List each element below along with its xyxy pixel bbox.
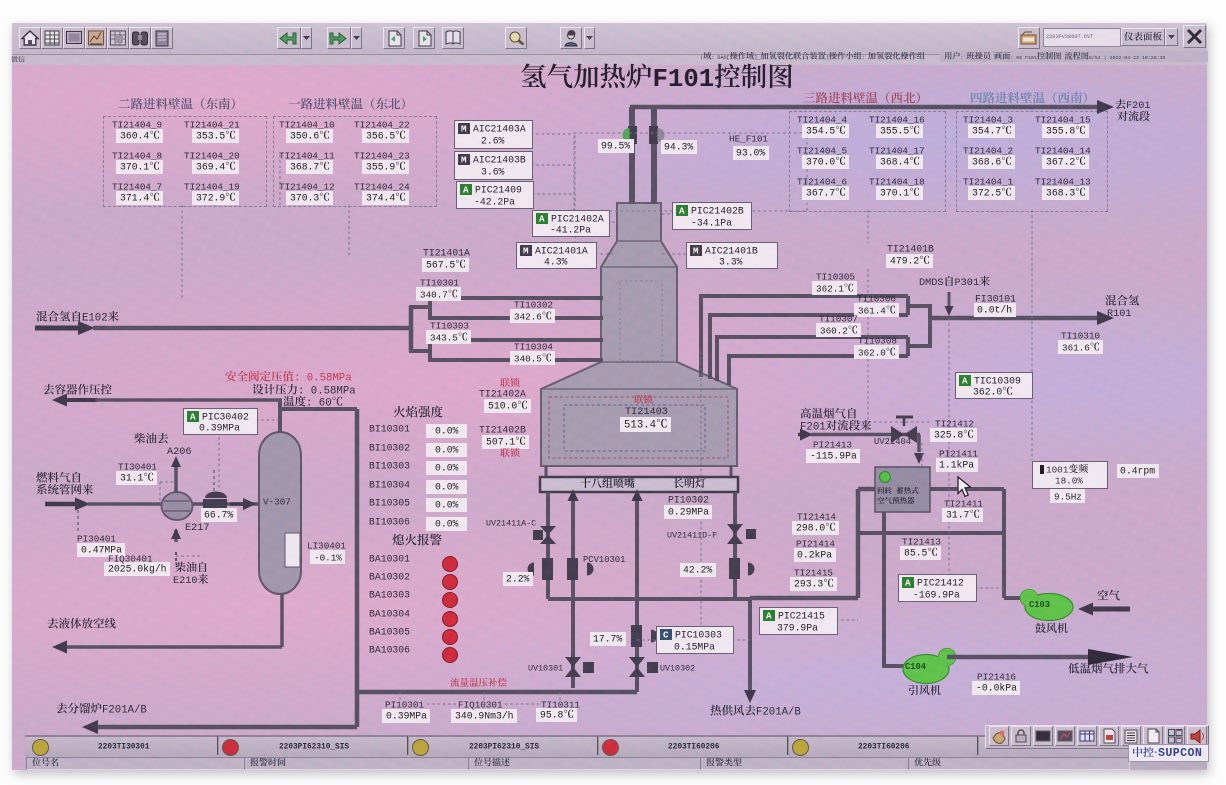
svg-text:372.9: 372.9 bbox=[196, 193, 225, 204]
svg-text:TI21404_17: TI21404_17 bbox=[869, 145, 925, 156]
svg-text:342.6: 342.6 bbox=[514, 311, 542, 322]
svg-text:F201A/B: F201A/B bbox=[756, 707, 801, 719]
svg-text:F101: F101 bbox=[652, 65, 714, 94]
svg-text:TI10301: TI10301 bbox=[420, 277, 459, 288]
svg-text:340.7: 340.7 bbox=[420, 289, 448, 300]
svg-text:355.9: 355.9 bbox=[366, 162, 395, 173]
svg-text:M: M bbox=[461, 123, 467, 134]
svg-text:FIQ10301: FIQ10301 bbox=[458, 699, 503, 710]
svg-text:369.4: 369.4 bbox=[196, 162, 225, 173]
svg-text:513.4: 513.4 bbox=[624, 420, 656, 432]
svg-text:M: M bbox=[693, 245, 699, 256]
svg-text:FI30101: FI30101 bbox=[975, 294, 1016, 305]
svg-text:M: M bbox=[523, 245, 529, 256]
svg-text:TI10307: TI10307 bbox=[819, 313, 858, 324]
svg-text:510.0: 510.0 bbox=[488, 401, 517, 412]
svg-text:R101: R101 bbox=[1107, 308, 1132, 320]
svg-text:368.4: 368.4 bbox=[880, 157, 909, 168]
svg-text:TI21404_18: TI21404_18 bbox=[869, 176, 925, 187]
svg-text:V-307: V-307 bbox=[263, 496, 291, 507]
svg-text:TI10310: TI10310 bbox=[1061, 330, 1100, 341]
svg-text:BA10303: BA10303 bbox=[369, 590, 410, 601]
svg-text:TI30401: TI30401 bbox=[118, 461, 157, 472]
svg-text:362.0: 362.0 bbox=[973, 387, 1002, 398]
svg-text:-0.0kPa: -0.0kPa bbox=[976, 683, 1017, 694]
svg-text:SUPCON: SUPCON bbox=[1158, 747, 1202, 760]
svg-text:0.2kPa: 0.2kPa bbox=[797, 550, 832, 561]
svg-text:93.0%: 93.0% bbox=[736, 148, 765, 159]
svg-text:BI10303: BI10303 bbox=[369, 461, 410, 472]
svg-text:0.0%: 0.0% bbox=[435, 463, 459, 474]
svg-text:340.9Nm3/h: 340.9Nm3/h bbox=[455, 711, 514, 722]
svg-text:TI21404_19: TI21404_19 bbox=[184, 181, 240, 192]
svg-text:2.6%: 2.6% bbox=[481, 136, 505, 147]
svg-text:370.0: 370.0 bbox=[806, 157, 835, 168]
svg-text:354.7: 354.7 bbox=[972, 126, 1001, 137]
svg-text:A: A bbox=[905, 577, 911, 588]
svg-text:1.1kPa: 1.1kPa bbox=[939, 460, 974, 471]
svg-text:PCV10301: PCV10301 bbox=[583, 555, 625, 565]
svg-text:TI21404_9: TI21404_9 bbox=[112, 119, 162, 130]
svg-text:TI21404_12: TI21404_12 bbox=[279, 181, 335, 192]
svg-text:343.5: 343.5 bbox=[430, 332, 458, 343]
svg-text:TI21413: TI21413 bbox=[902, 536, 941, 547]
svg-text:TI21402B: TI21402B bbox=[479, 425, 526, 436]
svg-text:TI10303: TI10303 bbox=[430, 320, 469, 331]
svg-text:360.4: 360.4 bbox=[120, 131, 149, 142]
svg-text:BA10304: BA10304 bbox=[369, 609, 410, 620]
svg-text:PIC21409: PIC21409 bbox=[475, 184, 522, 195]
svg-text:-41.2Pa: -41.2Pa bbox=[550, 225, 591, 236]
svg-text:1001: 1001 bbox=[1046, 464, 1069, 475]
svg-text:TI21404_11: TI21404_11 bbox=[279, 150, 335, 161]
svg-text:360.2: 360.2 bbox=[820, 325, 848, 336]
svg-text:350.6: 350.6 bbox=[290, 131, 319, 142]
svg-text:AIC21403B: AIC21403B bbox=[473, 154, 526, 165]
svg-text:PI21414: PI21414 bbox=[796, 538, 835, 549]
svg-text:PI30401: PI30401 bbox=[77, 533, 116, 544]
svg-text:3.3%: 3.3% bbox=[719, 257, 743, 268]
svg-text:0.0%: 0.0% bbox=[435, 500, 459, 511]
svg-text:354.5: 354.5 bbox=[806, 126, 835, 137]
svg-text:367.2: 367.2 bbox=[1046, 157, 1075, 168]
svg-text:PIC21415: PIC21415 bbox=[778, 610, 825, 621]
svg-text:-42.2Pa: -42.2Pa bbox=[474, 196, 515, 207]
svg-text:]_: ]_ bbox=[754, 55, 761, 61]
svg-text:BA10305: BA10305 bbox=[369, 627, 410, 638]
svg-text:TI21404_3: TI21404_3 bbox=[963, 114, 1013, 125]
svg-text:3.6%: 3.6% bbox=[481, 167, 505, 178]
svg-text:298.0: 298.0 bbox=[796, 523, 825, 534]
svg-text:361.6: 361.6 bbox=[1062, 342, 1090, 353]
svg-text:C: C bbox=[663, 629, 669, 640]
svg-text:BI10301: BI10301 bbox=[369, 424, 410, 435]
svg-text:A: A bbox=[962, 375, 968, 386]
svg-text:95.8: 95.8 bbox=[540, 710, 564, 721]
svg-text:-34.1Pa: -34.1Pa bbox=[691, 217, 732, 228]
svg-text:BI10302: BI10302 bbox=[369, 443, 410, 454]
svg-text::: : bbox=[862, 55, 865, 61]
svg-text:PI21413: PI21413 bbox=[813, 439, 852, 450]
svg-text:: 0.58MPa: : 0.58MPa bbox=[294, 373, 352, 385]
svg-text:0.39MPa: 0.39MPa bbox=[199, 423, 240, 434]
svg-text:PI21411: PI21411 bbox=[939, 448, 978, 459]
svg-text:0.0%: 0.0% bbox=[435, 445, 459, 456]
svg-text:TI21412: TI21412 bbox=[935, 418, 974, 429]
svg-text:94.3%: 94.3% bbox=[664, 142, 693, 153]
svg-text:DMDS: DMDS bbox=[919, 277, 944, 289]
svg-text:2.2%: 2.2% bbox=[506, 574, 530, 585]
svg-text:0.29MPa: 0.29MPa bbox=[668, 507, 709, 518]
svg-text:355.8: 355.8 bbox=[1046, 126, 1075, 137]
svg-text:371.4: 371.4 bbox=[120, 193, 149, 204]
svg-text:370.1: 370.1 bbox=[880, 188, 909, 199]
svg-text:A: A bbox=[766, 610, 772, 621]
svg-text:TI21411: TI21411 bbox=[944, 498, 983, 509]
svg-text:99.5%: 99.5% bbox=[601, 141, 630, 152]
svg-text:TI10305: TI10305 bbox=[816, 271, 855, 282]
svg-text:0.0%: 0.0% bbox=[435, 519, 459, 530]
svg-text:PI21416: PI21416 bbox=[977, 671, 1016, 682]
svg-text:TI21404_13: TI21404_13 bbox=[1035, 176, 1091, 187]
svg-text:TI21404_5: TI21404_5 bbox=[797, 145, 847, 156]
svg-text:TI21404_7: TI21404_7 bbox=[112, 181, 162, 192]
svg-text:HE_F101: HE_F101 bbox=[729, 133, 768, 144]
svg-text:UV10302: UV10302 bbox=[660, 663, 695, 673]
svg-text:C103: C103 bbox=[1029, 600, 1050, 610]
svg-text:C104: C104 bbox=[905, 662, 927, 672]
svg-text:18.0%: 18.0% bbox=[1055, 475, 1083, 486]
svg-text:TI21404_1: TI21404_1 bbox=[963, 176, 1014, 187]
svg-text:325.8: 325.8 bbox=[934, 430, 963, 441]
svg-text:A: A bbox=[539, 213, 545, 224]
svg-text:TI21404_22: TI21404_22 bbox=[354, 119, 410, 130]
svg-text:PI10302: PI10302 bbox=[668, 495, 709, 506]
svg-text:479.2: 479.2 bbox=[890, 256, 919, 267]
svg-text:E102: E102 bbox=[82, 313, 108, 325]
svg-text:-0.1%: -0.1% bbox=[314, 552, 342, 563]
svg-text:353.5: 353.5 bbox=[196, 131, 225, 142]
svg-text:P301: P301 bbox=[955, 277, 980, 289]
svg-text:370.3: 370.3 bbox=[290, 193, 319, 204]
svg-text:E217: E217 bbox=[185, 522, 210, 534]
svg-text:TI21414: TI21414 bbox=[797, 511, 836, 522]
svg-text:507.1: 507.1 bbox=[486, 437, 515, 448]
svg-text:TI21404_21: TI21404_21 bbox=[184, 119, 240, 130]
svg-text:0.15MPa: 0.15MPa bbox=[674, 641, 715, 652]
svg-text:|: | bbox=[700, 55, 703, 61]
svg-text:A206: A206 bbox=[167, 446, 192, 458]
svg-text:TI21404_14: TI21404_14 bbox=[1035, 145, 1091, 156]
svg-text:TI21401B: TI21401B bbox=[887, 244, 934, 255]
svg-text:TI21403: TI21403 bbox=[625, 406, 668, 418]
svg-text:368.7: 368.7 bbox=[290, 162, 319, 173]
svg-text:: DAO[: : DAO[ bbox=[711, 55, 729, 61]
svg-text:355.5: 355.5 bbox=[880, 126, 909, 137]
svg-text:4.3%: 4.3% bbox=[544, 257, 568, 268]
svg-text:A: A bbox=[463, 184, 469, 195]
svg-text:31.7: 31.7 bbox=[946, 510, 970, 521]
svg-text:368.6: 368.6 bbox=[972, 157, 1001, 168]
svg-text:2203FV2060T.OVT: 2203FV2060T.OVT bbox=[1046, 34, 1093, 40]
svg-text:-115.9Pa: -115.9Pa bbox=[810, 451, 857, 462]
svg-text:TI21402A: TI21402A bbox=[479, 389, 526, 400]
svg-text:TI21404_4: TI21404_4 bbox=[797, 114, 848, 125]
svg-text:PIC30402: PIC30402 bbox=[202, 411, 249, 422]
svg-text:0.0t/h: 0.0t/h bbox=[977, 305, 1012, 316]
svg-text:TI10306: TI10306 bbox=[857, 293, 896, 304]
svg-text:F201A/B: F201A/B bbox=[102, 705, 147, 717]
svg-text:BA10306: BA10306 bbox=[369, 645, 410, 656]
svg-text:BA10302: BA10302 bbox=[369, 572, 410, 583]
svg-text:368.3: 368.3 bbox=[1046, 188, 1075, 199]
svg-text:TI21415: TI21415 bbox=[794, 567, 833, 578]
svg-text:BI10304: BI10304 bbox=[369, 480, 410, 491]
svg-text:PIC10303: PIC10303 bbox=[675, 629, 722, 640]
svg-text:BI10305: BI10305 bbox=[369, 498, 410, 509]
svg-text:340.5: 340.5 bbox=[514, 353, 542, 364]
svg-text:AIC21403A: AIC21403A bbox=[473, 123, 526, 134]
svg-text:PIC21412: PIC21412 bbox=[917, 577, 964, 588]
svg-text:PI10301: PI10301 bbox=[385, 699, 424, 710]
svg-text:567.5: 567.5 bbox=[426, 260, 455, 271]
svg-text:PIC21402B: PIC21402B bbox=[691, 205, 744, 216]
svg-text:0.0%: 0.0% bbox=[435, 482, 459, 493]
svg-text:370.1: 370.1 bbox=[120, 162, 149, 173]
svg-text:TIC10309: TIC10309 bbox=[974, 375, 1021, 386]
svg-text:AIC21401B: AIC21401B bbox=[705, 245, 758, 256]
svg-text:0.39MPa: 0.39MPa bbox=[386, 711, 427, 722]
svg-text:UV21411A-C: UV21411A-C bbox=[486, 518, 536, 528]
svg-text:TI21404_2: TI21404_2 bbox=[963, 145, 1013, 156]
svg-text:A: A bbox=[679, 205, 685, 216]
svg-text:TI21404_24: TI21404_24 bbox=[354, 181, 410, 192]
svg-text:E210: E210 bbox=[173, 575, 198, 587]
svg-text:BA10301: BA10301 bbox=[369, 554, 410, 565]
svg-text:TI10302: TI10302 bbox=[514, 299, 553, 310]
svg-text:379.9Pa: 379.9Pa bbox=[777, 622, 818, 633]
svg-text:361.4: 361.4 bbox=[858, 305, 886, 316]
svg-text:PIC21402A: PIC21402A bbox=[551, 213, 604, 224]
svg-text:-169.9Pa: -169.9Pa bbox=[913, 589, 960, 600]
svg-text:A: A bbox=[190, 411, 196, 422]
svg-text:TI21404_23: TI21404_23 bbox=[354, 150, 410, 161]
svg-text:TI21404_15: TI21404_15 bbox=[1035, 114, 1091, 125]
svg-text:TI21404_20: TI21404_20 bbox=[184, 150, 240, 161]
svg-text:UV21411D-F: UV21411D-F bbox=[667, 530, 717, 540]
svg-text:BI10306: BI10306 bbox=[369, 517, 410, 528]
svg-text:9.5Hz: 9.5Hz bbox=[1054, 491, 1082, 502]
svg-text:TI21401A: TI21401A bbox=[423, 248, 470, 259]
svg-text:372.5: 372.5 bbox=[972, 188, 1001, 199]
svg-text:0.4rpm: 0.4rpm bbox=[1120, 466, 1155, 477]
svg-text:TI21404_16: TI21404_16 bbox=[869, 114, 925, 125]
svg-text:TI21404_10: TI21404_10 bbox=[279, 119, 335, 130]
svg-text:: 60: : 60 bbox=[306, 398, 332, 410]
svg-text:TI21404_6: TI21404_6 bbox=[797, 176, 847, 187]
svg-text:F201: F201 bbox=[800, 422, 826, 434]
svg-text:TI10304: TI10304 bbox=[514, 341, 553, 352]
svg-text:M: M bbox=[461, 154, 467, 165]
svg-text:31.1: 31.1 bbox=[120, 473, 144, 484]
svg-text:367.7: 367.7 bbox=[806, 188, 835, 199]
svg-text:42.2%: 42.2% bbox=[683, 565, 712, 576]
svg-text:374.4: 374.4 bbox=[366, 193, 395, 204]
svg-text:356.5: 356.5 bbox=[366, 131, 395, 142]
svg-text:66.7%: 66.7% bbox=[204, 510, 233, 521]
svg-text:UV10301: UV10301 bbox=[528, 663, 563, 673]
svg-text:293.3: 293.3 bbox=[794, 579, 823, 590]
svg-text:362.0: 362.0 bbox=[858, 347, 886, 358]
svg-text:0.0%: 0.0% bbox=[435, 426, 459, 437]
svg-text:TI21404_8: TI21404_8 bbox=[112, 150, 162, 161]
svg-text:2025.0kg/h: 2025.0kg/h bbox=[108, 564, 167, 575]
svg-text:|: | bbox=[826, 55, 829, 61]
svg-text:362.1: 362.1 bbox=[816, 283, 844, 294]
svg-text:LI30401: LI30401 bbox=[307, 540, 346, 551]
svg-text:17.7%: 17.7% bbox=[593, 634, 622, 645]
svg-text:85.5: 85.5 bbox=[904, 548, 928, 559]
svg-text:AIC21401A: AIC21401A bbox=[535, 245, 588, 256]
svg-text:TI10308: TI10308 bbox=[858, 335, 897, 346]
svg-text:UV21404: UV21404 bbox=[874, 437, 911, 447]
